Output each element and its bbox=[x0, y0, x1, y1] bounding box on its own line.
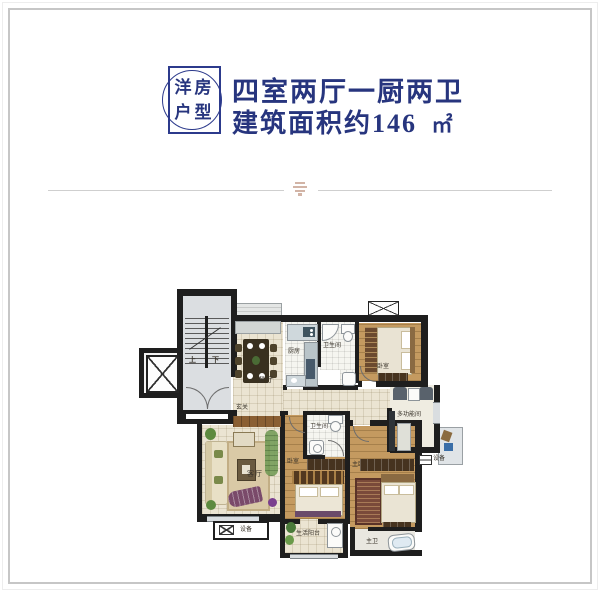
multi-desk bbox=[397, 423, 411, 451]
equipment-left-label: 设备 bbox=[240, 527, 252, 533]
dining-label: 餐厅 bbox=[258, 377, 274, 384]
wall-segment bbox=[139, 348, 144, 398]
bedroom2-east-wall bbox=[345, 411, 350, 523]
armchair bbox=[419, 387, 433, 400]
equipment-platform-left: 设备 bbox=[213, 521, 269, 540]
wall-segment bbox=[358, 381, 362, 387]
kitchen-label: 厨房 bbox=[288, 349, 300, 355]
bathroom2-label: 卫生间 bbox=[310, 424, 328, 430]
master-headboard bbox=[381, 474, 414, 482]
kitchen-units bbox=[304, 342, 318, 387]
equipment-item bbox=[444, 443, 453, 451]
plant-icon bbox=[206, 500, 216, 510]
plant-icon bbox=[286, 522, 296, 533]
toilet-icon bbox=[330, 421, 341, 432]
equipment-icon bbox=[419, 455, 432, 465]
sofa bbox=[205, 441, 228, 505]
master-east-wall bbox=[415, 420, 422, 532]
ac-unit-icon bbox=[368, 301, 399, 316]
bedroom1-label: 卧室 bbox=[377, 364, 389, 370]
tall-plant-icon bbox=[265, 430, 278, 476]
master-bath-label: 主卫 bbox=[366, 539, 378, 545]
bathtub-icon bbox=[387, 533, 416, 553]
bathroom1-label: 卫生间 bbox=[323, 343, 341, 349]
dining-chair bbox=[270, 357, 277, 365]
stairs-down-label: 下 bbox=[212, 357, 220, 364]
living-label: 客厅 bbox=[247, 471, 263, 478]
side-table bbox=[408, 388, 420, 401]
entry-door-leaf bbox=[186, 414, 228, 419]
washbasin-icon bbox=[309, 440, 324, 455]
multi-cabinet bbox=[389, 411, 395, 451]
wall-segment bbox=[177, 289, 237, 296]
master-bath-south-wall bbox=[350, 550, 422, 556]
armchair bbox=[393, 387, 407, 400]
equipment-right-label: 设备 bbox=[433, 456, 445, 462]
dining-chair bbox=[235, 370, 242, 378]
toilet-icon bbox=[343, 331, 353, 342]
multi-room-label: 多功能间 bbox=[397, 412, 421, 418]
floor-plan: 上 下 餐厅 厨房 bbox=[0, 0, 600, 592]
armchair bbox=[233, 432, 255, 447]
sideboard bbox=[235, 321, 281, 334]
living-west-wall bbox=[197, 420, 202, 520]
floorplan-page: 洋房 户型 四室两厅一厨两卫 建筑面积约146 ㎡ bbox=[0, 0, 600, 592]
bedroom1-east-wall bbox=[421, 315, 428, 387]
plant-decor bbox=[268, 498, 277, 507]
balcony-window bbox=[290, 554, 338, 559]
master-rug bbox=[355, 478, 382, 525]
dining-chair bbox=[235, 344, 242, 352]
washbasin-icon bbox=[342, 372, 356, 386]
kitchen-sink bbox=[286, 375, 306, 387]
bed2-headboard bbox=[292, 471, 344, 484]
bed1-bench bbox=[378, 373, 408, 381]
dining-chair bbox=[235, 357, 242, 365]
master-wardrobe bbox=[360, 459, 414, 471]
stair-stringer bbox=[205, 316, 208, 368]
stairs-up-label: 上 bbox=[189, 357, 197, 364]
bedroom2-label: 卧室 bbox=[287, 459, 299, 465]
ac-outdoor-icon bbox=[219, 525, 234, 535]
multi-window bbox=[433, 402, 440, 424]
wall-segment bbox=[139, 348, 181, 353]
bedroom2-west-wall bbox=[280, 411, 285, 523]
balcony-label: 生活阳台 bbox=[296, 531, 320, 537]
plant-icon bbox=[285, 535, 294, 545]
dining-chair bbox=[270, 344, 277, 352]
kitchen-counter bbox=[287, 324, 318, 341]
master-bath-wall bbox=[368, 527, 420, 531]
bed1-headboard bbox=[410, 327, 415, 373]
shoe-cabinet bbox=[233, 416, 281, 427]
balcony-east-wall bbox=[343, 519, 348, 558]
laundry-sink-icon bbox=[327, 523, 343, 548]
bed2-runner bbox=[295, 511, 341, 517]
master-bench bbox=[383, 522, 411, 527]
elevator-icon bbox=[146, 355, 179, 393]
master-mattress bbox=[381, 482, 416, 523]
bedroom2-wardrobe bbox=[307, 459, 345, 470]
wall-segment bbox=[139, 393, 181, 398]
plant-icon bbox=[205, 428, 216, 440]
foyer-label: 玄关 bbox=[236, 405, 248, 411]
